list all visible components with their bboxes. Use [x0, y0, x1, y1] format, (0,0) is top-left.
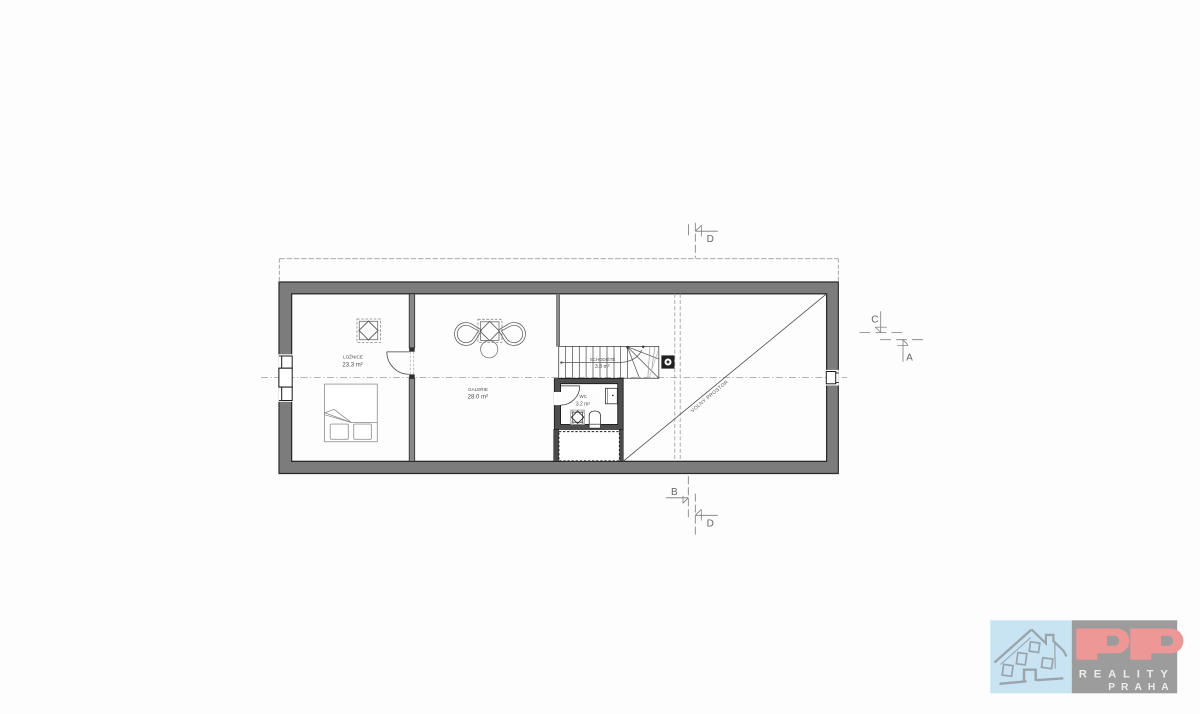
- svg-text:WC: WC: [579, 394, 587, 399]
- svg-text:C: C: [871, 315, 878, 326]
- svg-text:23.3 m²: 23.3 m²: [342, 362, 362, 368]
- svg-text:3.2 m²: 3.2 m²: [576, 402, 591, 408]
- svg-text:B: B: [671, 487, 678, 498]
- svg-text:D: D: [707, 234, 714, 245]
- svg-text:3.8 m²: 3.8 m²: [595, 364, 610, 370]
- svg-text:28.0 m²: 28.0 m²: [468, 395, 488, 401]
- svg-text:LOŽNICE: LOŽNICE: [343, 352, 363, 359]
- svg-text:D: D: [707, 519, 714, 530]
- svg-text:PRAHA: PRAHA: [1108, 682, 1174, 693]
- svg-text:A: A: [906, 352, 913, 363]
- svg-text:SCHODIŠTĚ: SCHODIŠTĚ: [590, 357, 616, 362]
- svg-text:REALITY: REALITY: [1079, 668, 1175, 680]
- svg-text:GALERIE: GALERIE: [468, 387, 488, 392]
